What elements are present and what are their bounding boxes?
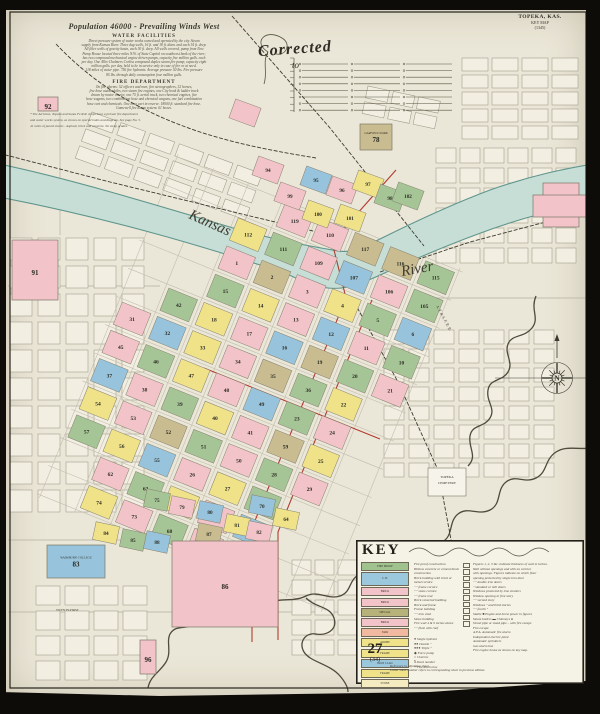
block-number: 1 (235, 261, 238, 267)
white-block-patch (462, 58, 578, 139)
block-number: 33 (200, 345, 206, 351)
map-lot (484, 463, 504, 477)
block-number: 18 (211, 317, 217, 323)
map-label: A. T. & S. F. R. R. (435, 303, 453, 331)
map-lot (104, 156, 133, 177)
key-flourish (407, 544, 557, 558)
map-lot (38, 434, 60, 456)
map-lot (66, 238, 88, 260)
map-lot (315, 620, 334, 635)
block-number: 64 (283, 517, 289, 523)
map-lot (484, 168, 504, 183)
map-lot (556, 148, 576, 163)
block-number: 95 (313, 178, 319, 184)
block-number: 10 (399, 360, 405, 366)
block-number: 83 (73, 561, 81, 569)
block-number: 45 (118, 345, 124, 351)
page-number-main: 27 (362, 642, 388, 657)
landmark-block (533, 195, 589, 217)
block-number: 110 (326, 233, 334, 239)
map-lot (204, 154, 233, 175)
map-lot (409, 387, 429, 401)
corrected-to-label: to (292, 60, 348, 70)
map-lot (522, 126, 548, 139)
photo-border-top (0, 0, 600, 10)
map-lot (10, 434, 32, 456)
block-number: 73 (132, 515, 138, 521)
text-line: Under sheet number refers to correspondi… (390, 668, 578, 672)
block-number: 97 (365, 182, 371, 188)
map-lot (436, 168, 456, 183)
key-swatch: C. B. (361, 572, 409, 586)
block-number: 29 (307, 487, 313, 493)
block-number: 36 (306, 388, 312, 394)
block-number: 112 (244, 233, 252, 239)
map-lot (36, 586, 60, 605)
block-number: 85 (130, 538, 136, 544)
block-number: 27 (225, 487, 231, 493)
block-number: 41 (248, 430, 254, 436)
map-lot (75, 146, 104, 167)
map-lot (534, 387, 554, 401)
map-lot (492, 126, 518, 139)
map-lot (66, 294, 88, 316)
map-lot (552, 92, 578, 105)
map-lot (434, 349, 454, 363)
map-lot (134, 167, 163, 188)
map-lot (38, 350, 60, 372)
map-lot (146, 133, 175, 154)
text-line: Fire engine house as shown on key map. (473, 648, 581, 653)
map-lot (492, 58, 518, 71)
map-lot (338, 600, 357, 615)
map-lot (508, 148, 528, 163)
block-number: 105 (420, 304, 429, 310)
map-lot (338, 580, 357, 595)
block-number: 81 (234, 523, 240, 529)
block-number: 82 (256, 530, 262, 536)
block-number: 50 (236, 458, 242, 464)
block-number: 94 (265, 168, 271, 174)
block-number: 59 (283, 445, 289, 451)
block-number: 100 (314, 212, 322, 218)
map-lot (484, 406, 504, 420)
map-lot (409, 425, 429, 439)
map-lot (36, 661, 60, 680)
map-lot (94, 636, 118, 655)
map-lot (10, 490, 32, 512)
block-number: 75 (154, 498, 160, 504)
map-lot (484, 425, 504, 439)
map-lot (384, 463, 404, 477)
map-lot (459, 349, 479, 363)
map-lot (192, 188, 221, 209)
landmark-label: GARFIELD PARK (364, 131, 388, 135)
block-number: 35 (270, 374, 276, 380)
block-number: 79 (179, 505, 185, 511)
map-lot (65, 636, 89, 655)
block-number: 5 (376, 318, 379, 324)
block-number: 117 (361, 247, 369, 253)
key-legend: KEY FIRE PROOFC. B.BRICKBRICKSPECIALBRIC… (356, 540, 584, 684)
map-lot (462, 58, 488, 71)
map-lot (94, 586, 118, 605)
map-lot (509, 406, 529, 420)
map-lot (434, 368, 454, 382)
block-number: 52 (166, 430, 172, 436)
map-lot (38, 462, 60, 484)
map-lot (111, 140, 140, 161)
text-line: 41 miles of paved streets - Asphalt, bri… (30, 124, 258, 128)
key-swatch: FAIR (361, 628, 409, 637)
map-lot (522, 58, 548, 71)
map-lot (66, 322, 88, 344)
map-lot (509, 387, 529, 401)
map-lot (509, 349, 529, 363)
block-number: 42 (176, 303, 182, 309)
map-lot (292, 620, 311, 635)
key-swatch: STONE (361, 679, 409, 688)
key-swatch: BRICK (361, 618, 409, 627)
block-number: 2 (271, 275, 274, 281)
map-lot (434, 387, 454, 401)
block-number: 23 (294, 416, 300, 422)
block-number: 86 (222, 583, 230, 591)
alarm-note: Gamewell fire alarm system. 61 boxes. (30, 106, 258, 110)
key-swatch: BRICK (361, 587, 409, 596)
key-title: KEY (362, 542, 401, 559)
block-number: 62 (108, 472, 114, 478)
map-lot (434, 330, 454, 344)
map-lot (460, 248, 480, 263)
map-lot (10, 406, 32, 428)
map-lot (552, 126, 578, 139)
page-number-previous: (34) (362, 657, 388, 663)
text-line: and water works system, as shown on spec… (30, 118, 258, 122)
block-number: 119 (291, 219, 299, 225)
key-swatch: BRICK (361, 598, 409, 607)
map-lot (94, 294, 116, 316)
map-lot (459, 444, 479, 458)
block-number: 38 (142, 388, 148, 394)
map-lot (362, 102, 386, 118)
block-number: 74 (96, 500, 102, 506)
scanned-map-sheet: 1191101171161151121111091071061051234561… (0, 0, 600, 714)
map-lot (532, 148, 552, 163)
map-lot (492, 92, 518, 105)
map-lot (94, 266, 116, 288)
map-lot (436, 148, 456, 163)
block-number: 15 (223, 289, 229, 295)
map-lot (391, 91, 415, 107)
corrected-title: Corrected (257, 37, 348, 61)
map-lot (492, 109, 518, 122)
map-lot (462, 92, 488, 105)
block-number: 32 (165, 331, 171, 337)
map-lot (292, 580, 311, 595)
block-number: 12 (328, 332, 334, 338)
map-lot (65, 611, 89, 630)
map-lot (10, 462, 32, 484)
map-lot (81, 129, 110, 150)
map-lot (384, 444, 404, 458)
block-number: 78 (373, 136, 381, 144)
block-number: 31 (129, 317, 135, 323)
block-number: 51 (201, 444, 207, 450)
map-lot (36, 611, 60, 630)
map-lot (123, 611, 147, 630)
map-lot (315, 640, 334, 655)
map-lot (94, 611, 118, 630)
map-lot (552, 58, 578, 71)
map-lot (409, 463, 429, 477)
map-lot (140, 150, 169, 171)
map-lot (388, 107, 412, 123)
map-lot (462, 126, 488, 139)
block-number: 14 (258, 303, 264, 309)
map-lot (10, 322, 32, 344)
block-number: 91 (32, 269, 40, 277)
map-lot (409, 444, 429, 458)
cemetery-label: TOPEKA (440, 475, 454, 479)
block-number: 25 (318, 459, 324, 465)
map-lot (532, 228, 552, 243)
map-lot (10, 378, 32, 400)
map-lot (65, 661, 89, 680)
map-lot (556, 228, 576, 243)
compass-north-letter: N (554, 375, 559, 383)
map-lot (338, 560, 357, 575)
map-lot (122, 238, 144, 260)
block-number: 56 (119, 444, 125, 450)
map-lot (522, 92, 548, 105)
map-lot (338, 640, 357, 655)
map-lot (169, 161, 198, 182)
text-line: ″ ″ flush with roof (414, 626, 470, 631)
map-lot (163, 178, 192, 199)
key-bottom-notes: Reference to adjoining sheet.Under sheet… (390, 664, 578, 673)
map-lot (338, 620, 357, 635)
photo-border-left (0, 0, 6, 714)
map-lot (492, 75, 518, 88)
block-number: 49 (259, 402, 265, 408)
population-title: Population 46000 - Prevailing Winds West (30, 22, 258, 31)
block-number: 54 (95, 402, 101, 408)
map-lot (484, 387, 504, 401)
white-block-patch (36, 586, 147, 680)
map-lot (522, 109, 548, 122)
map-lot (534, 406, 554, 420)
map-lot (534, 425, 554, 439)
landmark-label: WASHBURN COLLEGE (60, 556, 92, 560)
map-lot (434, 425, 454, 439)
map-lot (459, 368, 479, 382)
block-number: 20 (352, 374, 358, 380)
map-lot (221, 199, 250, 220)
block-number: 4 (341, 304, 344, 310)
map-lot (94, 238, 116, 260)
info-block: Population 46000 - Prevailing Winds West… (30, 22, 258, 128)
map-lot (508, 228, 528, 243)
map-lot (434, 444, 454, 458)
map-lot (38, 406, 60, 428)
block-number: 53 (130, 416, 136, 422)
block-number: 17 (246, 332, 252, 338)
block-number: 46 (153, 359, 159, 365)
map-lot (484, 444, 504, 458)
map-lot (522, 75, 548, 88)
block-number: 115 (432, 276, 440, 282)
map-lot (66, 350, 88, 372)
map-lot (413, 112, 437, 128)
map-label: TWENTY-FIRST (56, 608, 79, 612)
map-lot (462, 75, 488, 88)
map-lot (366, 86, 390, 102)
map-lot (508, 248, 528, 263)
map-lot (484, 349, 504, 363)
corrected-block: Corrected to (258, 40, 348, 70)
map-lot (509, 463, 529, 477)
block-number: 106 (385, 290, 394, 296)
map-lot (552, 109, 578, 122)
map-lot (460, 148, 480, 163)
key-construction-column: Fire proof constructionHollow concrete o… (414, 562, 470, 630)
block-number: 48 (224, 388, 230, 394)
block-number: 70 (259, 504, 265, 510)
block-number: 39 (177, 402, 183, 408)
map-lot (198, 171, 227, 192)
map-lot (36, 636, 60, 655)
text-line: 85 lbs. through daily consumption four m… (30, 73, 258, 77)
map-lot (509, 368, 529, 382)
block-number: 101 (346, 216, 354, 222)
photo-border-bottom (0, 680, 600, 714)
map-lot (123, 586, 147, 605)
map-lot (66, 462, 88, 484)
block-number: 24 (329, 431, 335, 437)
block-number: 3 (306, 289, 309, 295)
map-lot (434, 406, 454, 420)
block-number: 102 (404, 194, 412, 200)
block-number: 80 (207, 510, 213, 516)
map-lot (484, 330, 504, 344)
block-number: 96 (145, 656, 153, 664)
block-number: 13 (293, 318, 299, 324)
block-number: 68 (167, 529, 173, 535)
map-lot (556, 248, 576, 263)
map-lot (292, 600, 311, 615)
block-number: 99 (287, 194, 293, 200)
map-lot (509, 425, 529, 439)
map-lot (534, 330, 554, 344)
block-number: 19 (317, 360, 323, 366)
sheet-title-number: (1345) (500, 25, 580, 30)
water-facilities-text: Direct pressure system of water works ow… (30, 39, 258, 77)
map-lot (94, 661, 118, 680)
footnotes: * The Atchison, Topeka and Santa Fe R.R.… (30, 112, 258, 128)
block-number: 84 (103, 531, 109, 537)
block-number: 28 (271, 473, 277, 479)
block-number: 96 (339, 188, 345, 194)
key-swatch: FIRE PROOF (361, 562, 409, 571)
white-block-patch (362, 86, 440, 129)
map-lot (38, 322, 60, 344)
map-lot (416, 97, 440, 113)
block-number: 47 (188, 374, 194, 380)
map-lot (459, 330, 479, 344)
map-lot (10, 350, 32, 372)
block-number: 16 (282, 346, 288, 352)
block-number: 88 (154, 540, 160, 546)
block-number: 111 (280, 247, 288, 253)
block-number: 21 (387, 388, 393, 394)
map-lot (532, 248, 552, 263)
map-lot (436, 188, 456, 203)
map-lot (459, 406, 479, 420)
fire-department-text: On fire alarms: 52 officers and men, fiv… (30, 85, 258, 106)
block-number: 34 (235, 360, 241, 366)
sheet-title: TOPEKA, KAS. KEY MAP (1345) (500, 14, 580, 30)
white-block-patch (384, 330, 554, 477)
map-lot (552, 75, 578, 88)
map-lot (484, 148, 504, 163)
map-lot (462, 109, 488, 122)
map-lot (484, 368, 504, 382)
text-line: * The Atchison, Topeka and Santa Fe R.R.… (30, 112, 258, 116)
block-number: 107 (350, 275, 359, 281)
block-number: 11 (364, 346, 369, 352)
block-number: 55 (154, 458, 160, 464)
white-block-patch (292, 560, 357, 655)
block-number: 87 (206, 532, 212, 538)
page-number: 27 (34) (362, 642, 388, 663)
block-number: 57 (84, 430, 90, 436)
map-lot (65, 586, 89, 605)
map-lot (66, 266, 88, 288)
block-number: 37 (107, 373, 113, 379)
cemetery-label: CEMETERY (438, 481, 457, 485)
map-lot (484, 248, 504, 263)
map-lot (38, 378, 60, 400)
block-number: 26 (190, 472, 196, 478)
block-number: 6 (412, 332, 415, 338)
block-number: 22 (341, 402, 347, 408)
key-notes-column: Figures 1, 2, 3 &c. indicate thickness o… (473, 562, 581, 653)
photo-border-right (586, 0, 600, 714)
map-lot (459, 387, 479, 401)
map-lot (460, 168, 480, 183)
key-swatch: SPECIAL (361, 608, 409, 617)
map-lot (509, 444, 529, 458)
map-lot (534, 349, 554, 363)
block-number: 40 (212, 416, 218, 422)
block-number: 109 (314, 261, 323, 267)
map-lot (315, 560, 334, 575)
